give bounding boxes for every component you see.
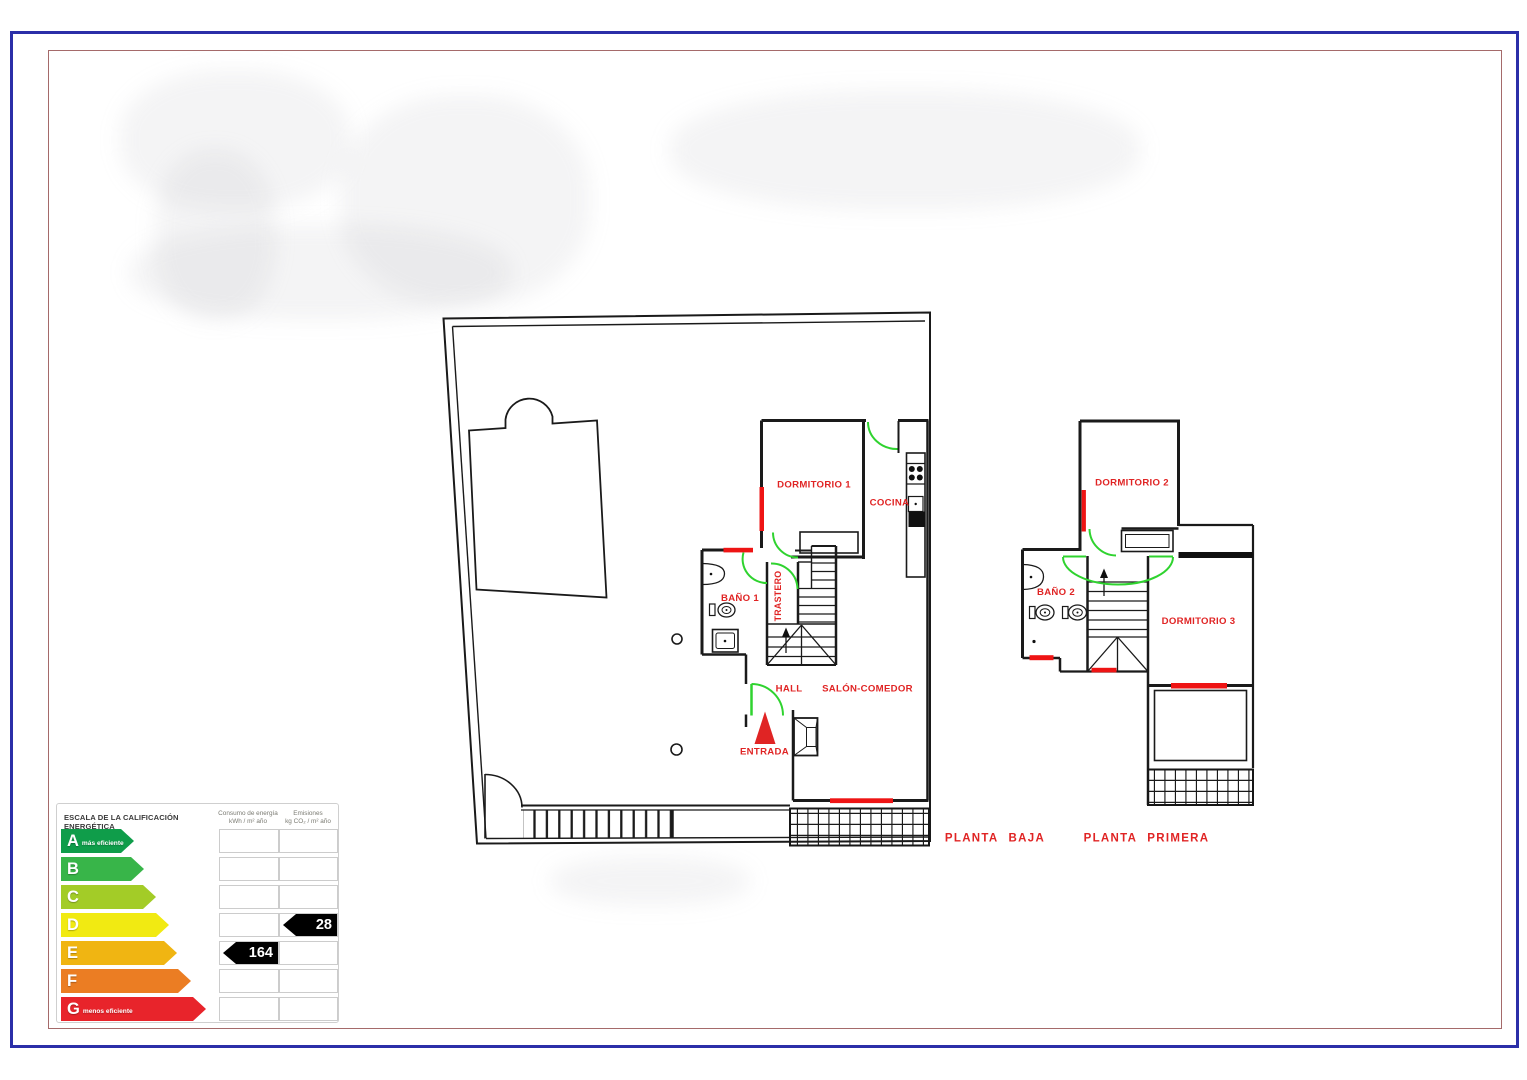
energy-row-b: B xyxy=(61,857,338,881)
room-label-entrada: ENTRADA xyxy=(740,747,789,758)
emissions-cell-e xyxy=(279,941,338,965)
consumption-cell-e: 164 xyxy=(219,941,279,965)
emissions-cell-b xyxy=(279,857,338,881)
energy-band-e: E xyxy=(61,941,177,965)
room-label-dormitorio-2: DORMITORIO 2 xyxy=(1095,478,1169,489)
energy-band-a: Amás eficiente xyxy=(61,829,134,853)
patio-column xyxy=(672,634,682,644)
first-floor-plan: DORMITORIO 2 BAÑO 2 DORMITORIO 3 PLANTA … xyxy=(1023,421,1254,845)
energy-letter-a: A xyxy=(67,829,79,853)
ground-floor-plan: DORMITORIO 1 COCINA BAÑO 1 TRASTERO HALL… xyxy=(444,313,1046,846)
emissions-cell-c xyxy=(279,885,338,909)
energy-letter-b: B xyxy=(67,857,79,881)
stairs-up-arrow xyxy=(782,628,790,638)
emissions-column-header: Emisiones kg CO₂ / m² año xyxy=(279,810,337,827)
energy-band-b: B xyxy=(61,857,144,881)
emissions-value-arrow: 28 xyxy=(283,914,337,936)
ground-floor-walls xyxy=(702,421,929,801)
entrance-arrow xyxy=(755,712,776,745)
document-page: DORMITORIO 1 COCINA BAÑO 1 TRASTERO HALL… xyxy=(0,0,1527,1080)
energy-row-e: E164 xyxy=(61,941,338,965)
balcony-paving xyxy=(1148,770,1253,806)
consumption-cell-f xyxy=(219,969,279,993)
room-label-salon-comedor: SALÓN-COMEDOR xyxy=(822,683,913,695)
pergola-and-terrace xyxy=(485,774,929,846)
stairs-up-arrow xyxy=(1100,569,1108,579)
energy-letter-g: G xyxy=(67,997,80,1021)
energy-letter-c: C xyxy=(67,885,79,909)
energy-letter-d: D xyxy=(67,913,79,937)
emissions-cell-a xyxy=(279,829,338,853)
kitchen-fixtures xyxy=(907,453,926,577)
consumption-cell-b xyxy=(219,857,279,881)
energy-certificate-scale: ESCALA DE LA CALIFICACIÓN ENERGÉTICA Con… xyxy=(56,803,339,1023)
room-label-bano-1: BAÑO 1 xyxy=(721,593,759,604)
consumption-column-header: Consumo de energía kWh / m² año xyxy=(217,810,279,827)
energy-rows: Amás eficienteBCD28E164FGmenos eficiente xyxy=(61,829,338,1025)
pool-outline xyxy=(469,399,607,598)
patio-column xyxy=(671,744,682,755)
bathroom1-fixtures xyxy=(703,564,739,653)
consumption-cell-a xyxy=(219,829,279,853)
consumption-cell-c xyxy=(219,885,279,909)
energy-note: menos eficiente xyxy=(83,1008,133,1015)
floor-title-planta-primera: PLANTA PRIMERA xyxy=(1084,833,1210,845)
room-label-trastero: TRASTERO xyxy=(773,571,783,622)
entrance-vestibule xyxy=(794,718,818,756)
consumption-value-arrow: 164 xyxy=(223,942,278,964)
room-label-hall: HALL xyxy=(776,684,803,695)
energy-row-d: D28 xyxy=(61,913,338,937)
room-label-dormitorio-3: DORMITORIO 3 xyxy=(1162,616,1236,627)
emissions-cell-g xyxy=(279,997,338,1021)
energy-letter-f: F xyxy=(67,969,77,993)
paved-terrace xyxy=(790,809,929,846)
floor-title-planta-baja: PLANTA BAJA xyxy=(945,833,1045,845)
energy-band-g: Gmenos eficiente xyxy=(61,997,206,1021)
consumption-cell-g xyxy=(219,997,279,1021)
emissions-cell-f xyxy=(279,969,338,993)
room-label-cocina: COCINA xyxy=(870,498,910,509)
room-label-dormitorio-1: DORMITORIO 1 xyxy=(777,480,851,491)
consumption-cell-d xyxy=(219,913,279,937)
energy-row-a: Amás eficiente xyxy=(61,829,338,853)
energy-band-c: C xyxy=(61,885,156,909)
energy-band-f: F xyxy=(61,969,191,993)
plot-boundary xyxy=(444,313,931,844)
energy-row-c: C xyxy=(61,885,338,909)
energy-row-g: Gmenos eficiente xyxy=(61,997,338,1021)
energy-row-f: F xyxy=(61,969,338,993)
energy-letter-e: E xyxy=(67,941,78,965)
energy-band-d: D xyxy=(61,913,169,937)
room-label-bano-2: BAÑO 2 xyxy=(1037,587,1075,598)
energy-note: más eficiente xyxy=(82,840,124,847)
emissions-cell-d: 28 xyxy=(279,913,338,937)
